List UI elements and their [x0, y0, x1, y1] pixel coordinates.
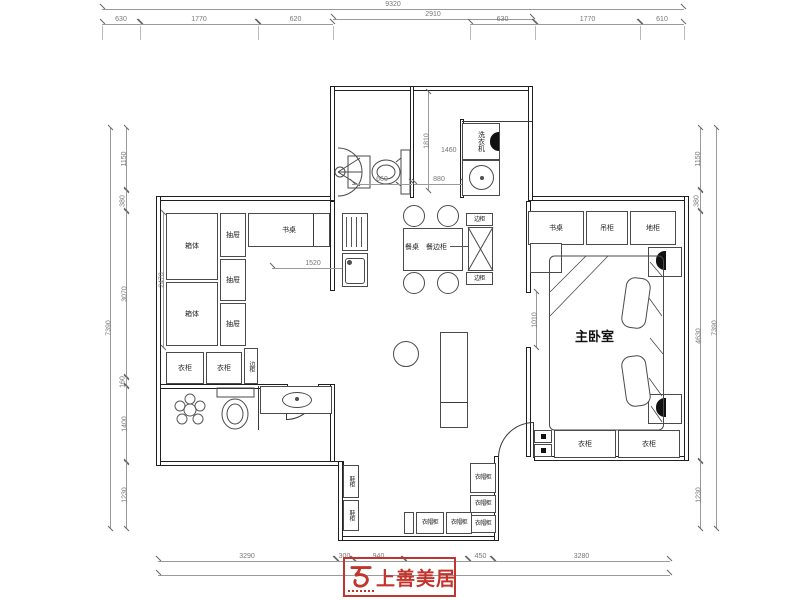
master-desk: 书桌	[528, 211, 584, 245]
tatami-box: 箱体	[166, 213, 218, 280]
drawer: 抽屉	[220, 213, 246, 257]
brand-logo: 上善美居	[343, 557, 456, 597]
wardrobe: 衣柜	[166, 352, 204, 384]
entry-door-arc	[498, 422, 534, 458]
dim-top-right-2: 1770	[535, 24, 640, 25]
master-bedroom-label: 主卧室	[575, 326, 614, 345]
dim-right-1: 1150	[700, 128, 701, 190]
dining-chair	[403, 205, 425, 227]
dim-left-5: 1400	[126, 386, 127, 462]
dim-bottom-1: 3290	[158, 561, 336, 562]
dim-shower: 660	[352, 184, 412, 185]
extension-line	[140, 26, 141, 40]
cabinet-strip	[440, 332, 468, 428]
cloak-cabinet: 衣帽柜	[470, 515, 496, 533]
sink-faucet	[347, 260, 352, 265]
dim-right-2: 380	[700, 190, 701, 211]
toilet	[212, 386, 258, 434]
hanging-cabinet: 吊柜	[586, 211, 628, 245]
dim-right-total: 7390	[716, 128, 717, 528]
dining-chair	[437, 205, 459, 227]
tatami-box: 箱体	[166, 282, 218, 346]
wall	[330, 86, 532, 91]
wall	[528, 86, 533, 201]
floor-plan: 9320 2910 630 1770 620 630 1770 610 7390…	[0, 0, 800, 600]
extension-line	[535, 26, 536, 40]
extension-line	[333, 26, 334, 40]
shoe-cabinet: 鞋柜	[343, 500, 359, 531]
corner-side-cabinet: 边柜	[244, 348, 258, 384]
dim-laundry: 1460	[441, 147, 457, 154]
cloak-cabinet: 衣帽柜	[470, 463, 496, 493]
plant	[172, 392, 208, 430]
extension-line	[470, 26, 471, 40]
extension-line	[640, 26, 641, 40]
desk-divider	[313, 214, 314, 246]
dim-top-left-3: 620	[258, 24, 333, 25]
brand-logo-icon	[348, 563, 374, 592]
floor-cabinet: 地柜	[630, 211, 676, 245]
brand-logo-subtext	[348, 590, 374, 592]
wall	[156, 196, 335, 201]
ceiling-fixture	[393, 341, 419, 367]
side-cabinet: 边柜	[466, 213, 493, 226]
sideboard-leader	[450, 246, 468, 247]
wall	[528, 196, 688, 201]
dining-chair	[403, 272, 425, 294]
dim-bath-depth: 1810	[428, 92, 429, 190]
wardrobe: 衣柜	[554, 430, 616, 458]
wardrobe: 衣柜	[618, 430, 680, 458]
drawer: 抽屉	[220, 259, 246, 301]
small-cabinet	[534, 444, 552, 457]
sideboard-cross	[468, 227, 493, 271]
wall	[156, 196, 161, 466]
dim-tatami: 2470	[163, 213, 164, 347]
dining-table-label: 餐桌	[405, 242, 419, 252]
dim-bottom-6: 3280	[493, 561, 670, 562]
shoe-cabinet: 鞋柜	[343, 465, 359, 498]
cabinet-divider	[441, 402, 467, 403]
stove-grille	[346, 217, 364, 247]
wall	[330, 201, 335, 291]
cloak-cabinet: 衣帽柜	[470, 495, 496, 513]
wall	[684, 196, 689, 461]
dim-top-right-1: 630	[470, 24, 535, 25]
dim-right-3: 4630	[700, 211, 701, 461]
dim-top-total: 9320	[102, 9, 684, 10]
wall	[156, 461, 344, 466]
small-cabinet	[534, 430, 552, 443]
dim-passage: 880	[414, 184, 464, 185]
dim-top-left-2: 1770	[140, 24, 258, 25]
dim-left-total: 7390	[110, 128, 111, 528]
wall-line	[462, 121, 532, 122]
wardrobe: 衣柜	[206, 352, 242, 384]
cloak-cabinet: 衣帽柜	[446, 512, 472, 534]
extension-line	[102, 26, 103, 40]
dim-right-4: 1230	[700, 461, 701, 528]
dim-left-6: 1230	[126, 462, 127, 528]
wall-line	[258, 386, 259, 430]
sideboard-label: 餐边柜	[426, 242, 447, 252]
dim-bottom-5: 450	[468, 561, 493, 562]
hall-strip	[404, 512, 414, 534]
brand-logo-text: 上善美居	[376, 564, 456, 591]
vanity-faucet	[295, 397, 299, 401]
wall	[338, 536, 499, 541]
dim-left-3: 3070	[126, 211, 127, 377]
dim-opening: 1010	[536, 292, 537, 347]
extension-line	[258, 26, 259, 40]
dim-left-1: 1150	[126, 128, 127, 190]
dim-top-right-3: 610	[640, 24, 684, 25]
dim-top-left-1: 630	[102, 24, 140, 25]
side-cabinet: 边柜	[466, 272, 493, 285]
toilet	[368, 146, 412, 198]
laundry-drain	[480, 176, 484, 180]
study-desk: 书桌	[248, 213, 330, 247]
cloak-cabinet: 衣帽柜	[416, 512, 444, 534]
drawer: 抽屉	[220, 303, 246, 346]
dim-left-2: 380	[126, 190, 127, 211]
dining-chair	[437, 272, 459, 294]
extension-line	[684, 26, 685, 40]
